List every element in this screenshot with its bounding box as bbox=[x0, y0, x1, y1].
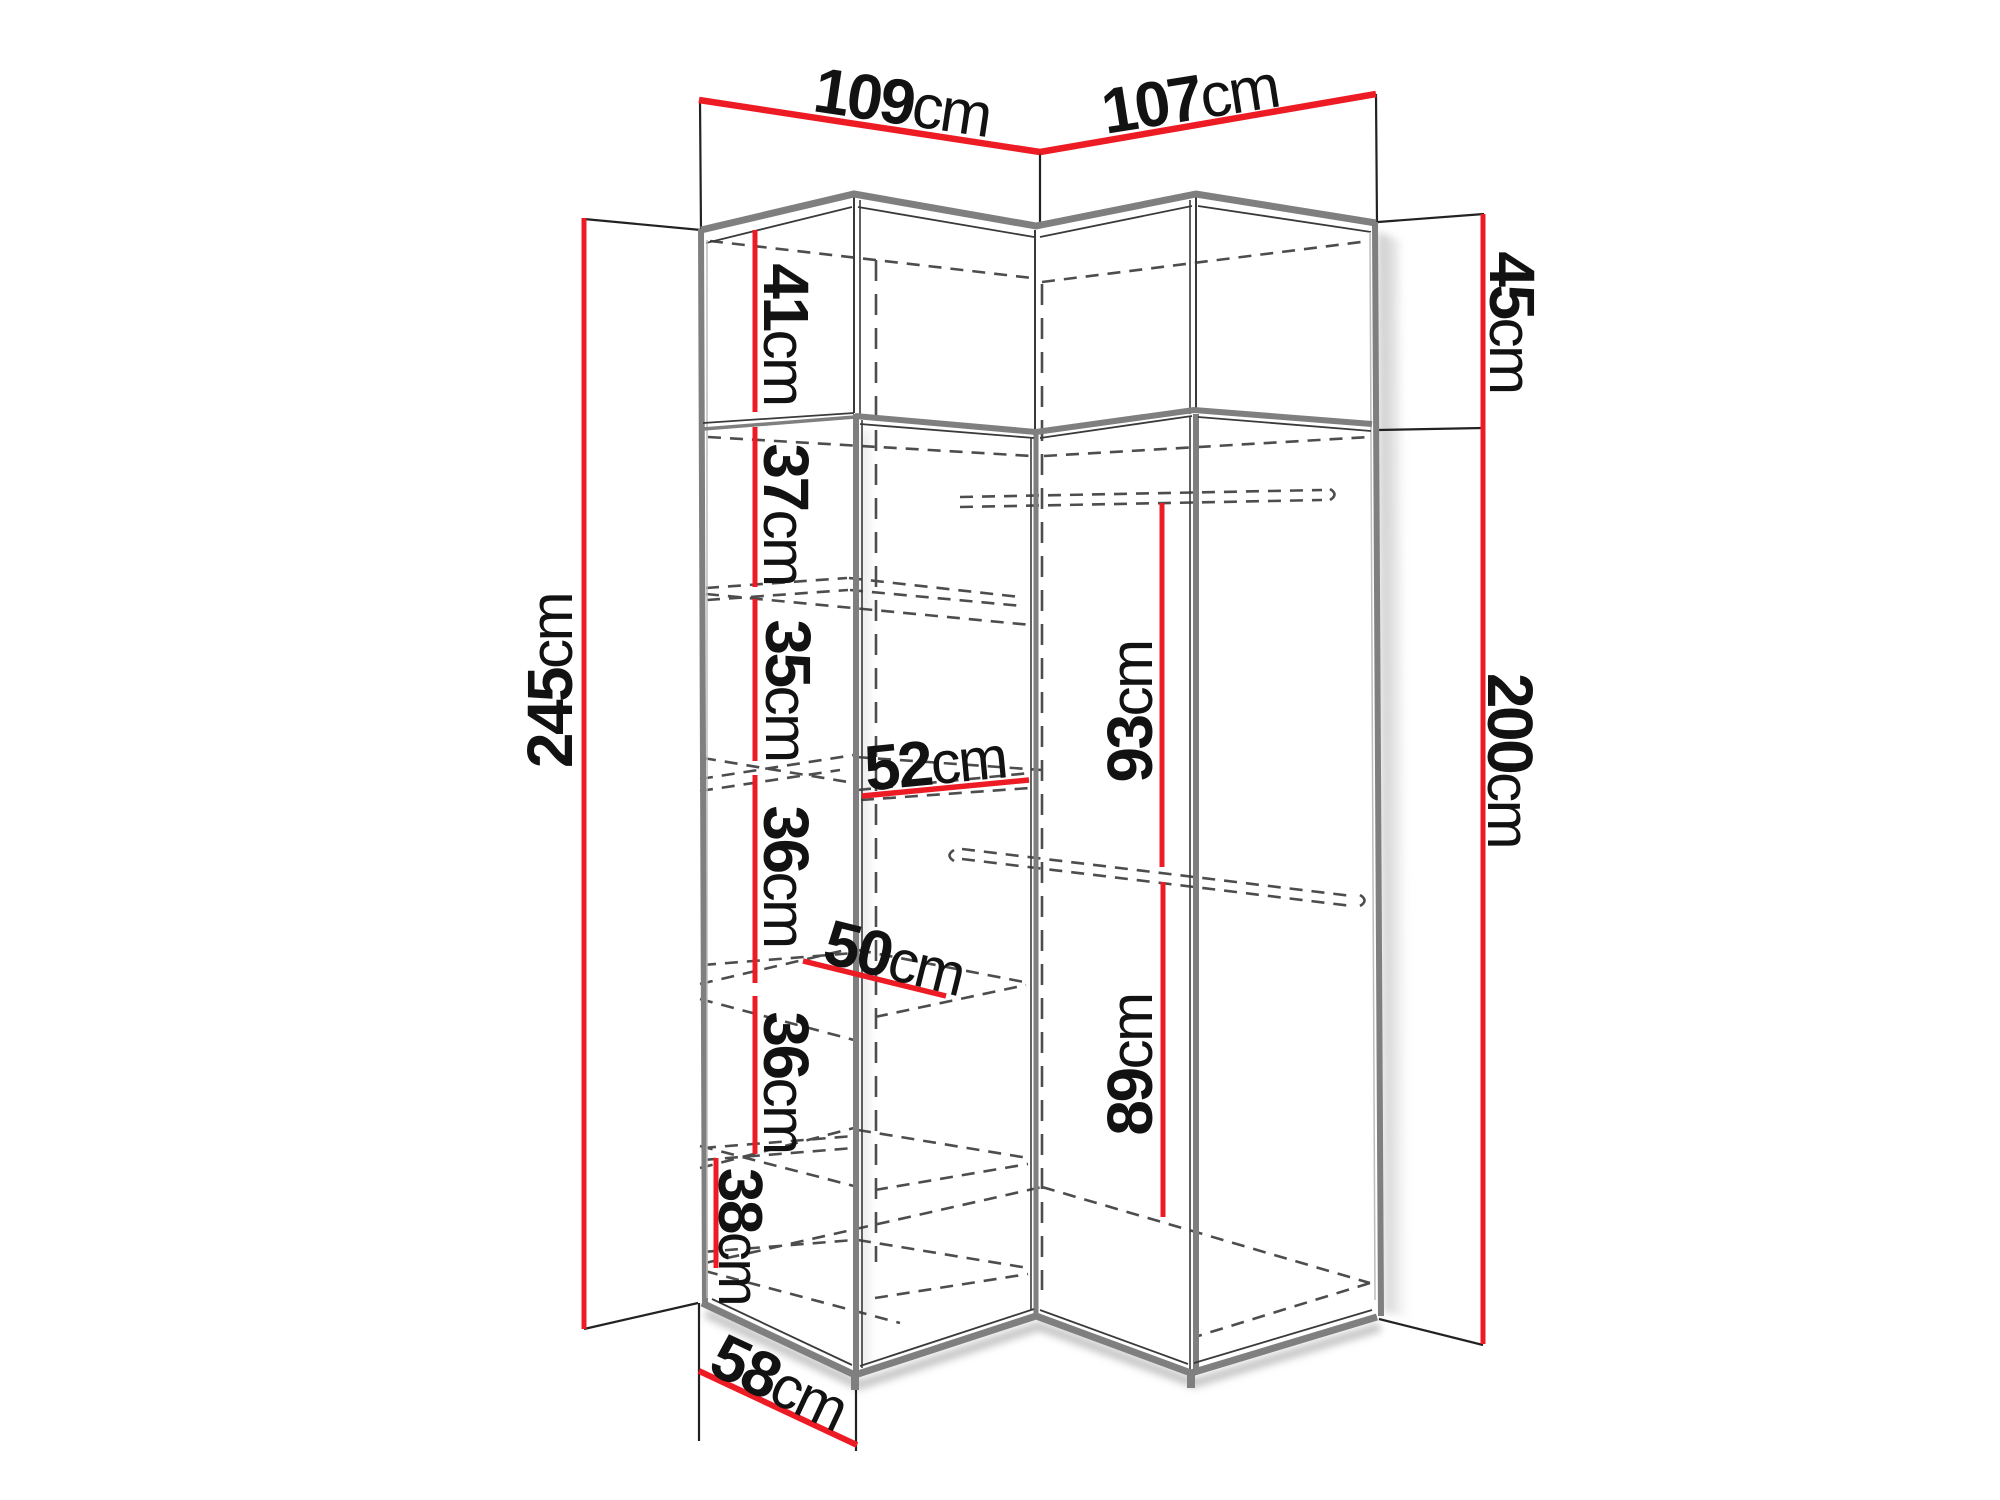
svg-text:38cm: 38cm bbox=[705, 1168, 774, 1304]
svg-text:37cm: 37cm bbox=[750, 443, 822, 584]
svg-text:107cm: 107cm bbox=[1097, 49, 1283, 148]
svg-text:200cm: 200cm bbox=[1474, 673, 1546, 847]
svg-text:35cm: 35cm bbox=[752, 619, 824, 760]
svg-text:109cm: 109cm bbox=[809, 54, 995, 151]
svg-text:36cm: 36cm bbox=[750, 805, 822, 946]
svg-text:41cm: 41cm bbox=[750, 263, 822, 404]
svg-text:245cm: 245cm bbox=[514, 594, 586, 768]
svg-text:36cm: 36cm bbox=[750, 1011, 822, 1152]
svg-text:50cm: 50cm bbox=[817, 906, 971, 1010]
svg-text:52cm: 52cm bbox=[861, 720, 1008, 805]
svg-text:45cm: 45cm bbox=[1476, 251, 1548, 392]
svg-text:89cm: 89cm bbox=[1094, 994, 1166, 1135]
svg-text:93cm: 93cm bbox=[1094, 641, 1166, 782]
